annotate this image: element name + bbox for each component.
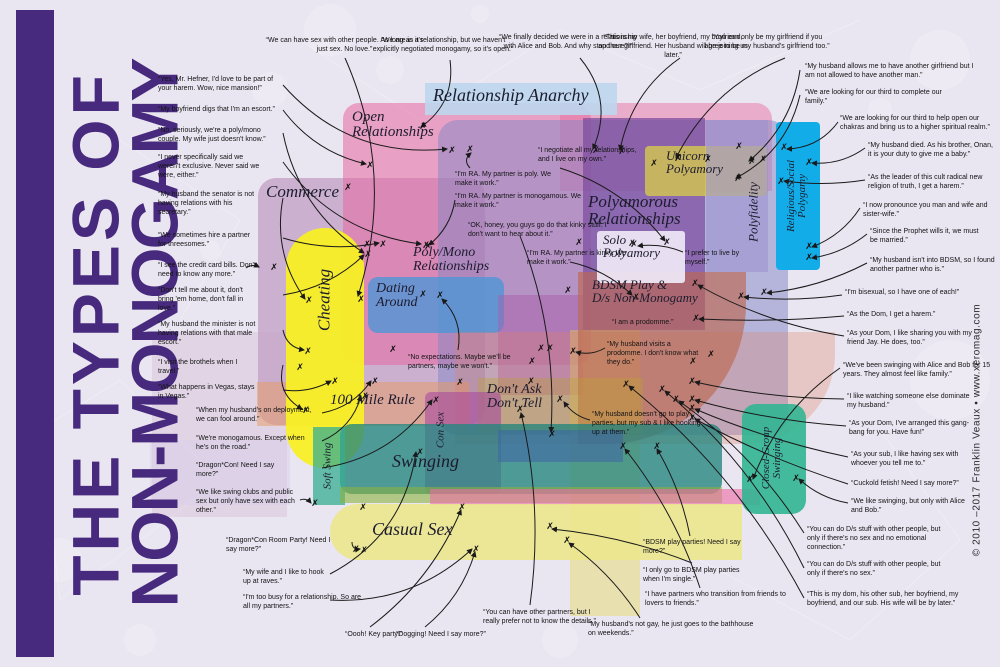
- x-marker: ✗: [456, 378, 464, 388]
- region-label-line: Swinging: [392, 452, 459, 470]
- quote-text: “My husband visits a prodomme. I don't k…: [607, 340, 702, 367]
- quote-text: “We've been swinging with Alice and Bob …: [843, 361, 993, 379]
- quote-arrow: [425, 552, 475, 627]
- x-marker: ✗: [564, 286, 572, 296]
- quote-text: “We like swing clubs and public sex but …: [196, 488, 301, 515]
- x-marker: ✗: [352, 545, 360, 555]
- region-label-line: Polygamy: [797, 160, 808, 232]
- region-label-line: Con Sex: [435, 412, 446, 448]
- x-marker: ✗: [389, 345, 397, 355]
- x-marker: ✗: [805, 242, 813, 252]
- x-marker: ✗: [805, 158, 813, 168]
- quote-text: “I like watching someone else dominate m…: [847, 392, 977, 410]
- region-label-casual-sex: Casual Sex: [372, 520, 453, 538]
- quote-text: “I'm bisexual, so I have one of each!”: [845, 288, 995, 297]
- region-label-line: BDSM Play &: [592, 278, 698, 291]
- x-marker: ✗: [632, 293, 640, 303]
- quote-text: “Don't tell me about it, don't bring 'em…: [158, 286, 253, 313]
- x-marker: ✗: [548, 430, 556, 440]
- quote-text: “This is my dom, his other sub, her boyf…: [807, 590, 982, 608]
- x-marker: ✗: [707, 350, 715, 360]
- x-marker: ✗: [305, 296, 313, 306]
- region-label-line: Relationships: [413, 260, 489, 274]
- region-label-commerce: Commerce: [266, 183, 339, 200]
- region-label-line: D/s Non-Monogamy: [592, 291, 698, 304]
- quote-text: “As the Dom, I get a harem.”: [847, 310, 977, 319]
- x-marker: ✗: [792, 474, 800, 484]
- x-marker: ✗: [419, 122, 427, 132]
- quote-text: “I never specifically said we weren't ex…: [158, 153, 263, 180]
- x-marker: ✗: [304, 347, 312, 357]
- region-label-line: 100 Mile Rule: [330, 393, 415, 408]
- region-label-line: Commerce: [266, 183, 339, 200]
- quote-text: “My husband the minister is not having r…: [158, 320, 258, 347]
- region-label-dont-ask-dont-tell: Don't AskDon't Tell: [487, 383, 542, 412]
- x-marker: ✗: [296, 363, 304, 373]
- x-marker: ✗: [331, 377, 339, 387]
- quote-text: “As your Dom, I've arranged this gang-ba…: [849, 419, 984, 437]
- quote-text: “As your sub, I like having sex with who…: [851, 450, 976, 468]
- quote-text: “We are in a relationship, but we haven'…: [368, 36, 518, 54]
- quote-text: “My husband's not gay, he just goes to t…: [588, 620, 758, 638]
- quote-text: “Dragon*Con Room Party! Need I say more?…: [226, 536, 336, 554]
- x-marker: ✗: [575, 238, 583, 248]
- region-label-line: Swinging: [772, 427, 783, 490]
- region-label-closed-group-swinging: Closed-GroupSwinging: [761, 427, 783, 490]
- x-marker: ✗: [364, 250, 372, 260]
- region-label-line: Relationship Anarchy: [433, 86, 588, 104]
- region-pink-strip: [430, 489, 760, 505]
- region-label-line: Casual Sex: [372, 520, 453, 538]
- x-marker: ✗: [556, 395, 564, 405]
- region-label-religious-social-polygamy: Religious/SocialPolygamy: [786, 160, 808, 232]
- region-label-cheating: Cheating: [315, 269, 332, 331]
- x-marker: ✗: [688, 377, 696, 387]
- x-marker: ✗: [653, 442, 661, 452]
- x-marker: ✗: [432, 396, 440, 406]
- x-marker: ✗: [704, 155, 712, 165]
- quote-text: “Dragon*Con! Need I say more?”: [196, 461, 276, 479]
- x-marker: ✗: [416, 448, 424, 458]
- quote-text: “You can have other partners, but I real…: [483, 608, 603, 626]
- x-marker: ✗: [357, 295, 365, 305]
- region-label-line: Soft Swing: [322, 443, 333, 490]
- quote-text: “OK, honey, you guys go do that kinky st…: [468, 221, 618, 239]
- quote-text: “What happens in Vegas, stays in Vegas.”: [158, 383, 258, 401]
- quote-text: “As the leader of this cult radical new …: [868, 173, 993, 191]
- quote-arrow: [799, 479, 848, 503]
- x-marker: ✗: [735, 142, 743, 152]
- quote-text: “My husband the senator is not having re…: [158, 190, 258, 217]
- x-marker: ✗: [622, 380, 630, 390]
- quote-text: “We're monogamous. Except when he's on t…: [196, 434, 306, 452]
- quote-text: “I negotiate all my relationships, and I…: [538, 146, 643, 164]
- quote-text: “I now pronounce you man and wife and si…: [863, 201, 988, 219]
- x-marker: ✗: [672, 395, 680, 405]
- region-label-soft-swing: Soft Swing: [322, 443, 333, 490]
- x-marker: ✗: [448, 146, 456, 156]
- x-marker: ✗: [360, 546, 368, 556]
- quote-text: “I see the credit card bills. Don't need…: [158, 261, 268, 279]
- x-marker: ✗: [472, 545, 480, 555]
- x-marker: ✗: [663, 238, 671, 248]
- x-marker: ✗: [650, 159, 658, 169]
- x-marker: ✗: [760, 288, 768, 298]
- quote-text: “When my husband's on deployment, we can…: [196, 406, 316, 424]
- region-label-line: Don't Tell: [487, 397, 542, 411]
- x-marker: ✗: [359, 503, 367, 513]
- x-marker: ✗: [759, 155, 767, 165]
- quote-text: “Since the Prophet wills it, we must be …: [870, 227, 985, 245]
- quote-text: “My boyfriend digs that I'm an escort.”: [158, 105, 288, 114]
- region-label-dating-around: DatingAround: [376, 282, 417, 311]
- quote-text: “My husband allows me to have another gi…: [805, 62, 980, 80]
- x-marker: ✗: [371, 377, 379, 387]
- region-label-line: Cheating: [315, 269, 332, 331]
- region-label-line: Polyfidelity: [746, 182, 759, 242]
- quote-text: “My wife and I like to hook up at raves.…: [243, 568, 333, 586]
- x-marker: ✗: [436, 291, 444, 301]
- quote-text: “Yes, Mr. Hefner, I'd love to be part of…: [158, 75, 283, 93]
- quote-text: “My husband doesn't go to play parties, …: [592, 410, 702, 437]
- x-marker: ✗: [674, 154, 682, 164]
- x-marker: ✗: [419, 290, 427, 300]
- quote-text: “I visit the brothels when I travel.”: [158, 358, 248, 376]
- x-marker: ✗: [619, 442, 627, 452]
- x-marker: ✗: [379, 240, 387, 250]
- quote-text: “I'm too busy for a relationship. So are…: [243, 593, 363, 611]
- region-label-bdsm-play: BDSM Play &D/s Non-Monogamy: [592, 278, 698, 305]
- x-marker: ✗: [748, 157, 756, 167]
- region-label-swinging: Swinging: [392, 452, 459, 470]
- x-marker: ✗: [563, 536, 571, 546]
- region-label-line: Polyamory: [666, 162, 723, 175]
- quote-text: “You can do D/s stuff with other people,…: [807, 560, 947, 578]
- x-marker: ✗: [658, 385, 666, 395]
- quote-arrow: [812, 234, 867, 258]
- quote-text: “No, seriously, we're a poly/mono couple…: [158, 126, 283, 144]
- x-marker: ✗: [363, 240, 371, 250]
- x-marker: ✗: [311, 499, 319, 509]
- quote-text: “We are looking for our third to help op…: [840, 114, 995, 132]
- x-marker: ✗: [516, 405, 524, 415]
- x-marker: ✗: [361, 392, 369, 402]
- x-marker: ✗: [777, 177, 785, 187]
- x-marker: ✗: [458, 503, 466, 513]
- x-marker: ✗: [270, 263, 278, 273]
- x-marker: ✗: [466, 145, 474, 155]
- quote-text: “Cuckold fetish! Need I say more?”: [851, 479, 981, 488]
- x-marker: ✗: [805, 253, 813, 263]
- x-marker: ✗: [527, 377, 535, 387]
- quote-text: “I have partners who transition from fri…: [645, 590, 795, 608]
- x-marker: ✗: [691, 279, 699, 289]
- quote-arrow: [300, 499, 311, 503]
- x-marker: ✗: [366, 161, 374, 171]
- quote-text: “I'm RA. My partner is poly. We make it …: [455, 170, 570, 188]
- region-label-hundred-mile-rule: 100 Mile Rule: [330, 393, 415, 408]
- x-marker: ✗: [737, 292, 745, 302]
- region-label-line: Around: [376, 296, 417, 310]
- quote-text: “I only go to BDSM play parties when I'm…: [643, 566, 753, 584]
- quote-text: “Dogging! Need I say more?”: [396, 630, 506, 639]
- quote-text: “My husband died. As his brother, Onan, …: [868, 141, 998, 159]
- region-label-line: Dating: [376, 282, 417, 296]
- quote-text: “My husband isn't into BDSM, so I found …: [870, 256, 995, 274]
- quote-text: “We are looking for our third to complet…: [805, 88, 955, 106]
- quote-text: “BDSM play parties! Need I say more?”: [643, 538, 743, 556]
- quote-text: “We like swinging, but only with Alice a…: [851, 497, 971, 515]
- x-marker: ✗: [344, 183, 352, 193]
- poster: THE TYPES OF NON-MONOGAMY © 2010 –2017 F…: [0, 0, 1000, 667]
- quote-text: “As your Dom, I like sharing you with my…: [847, 329, 982, 347]
- x-marker: ✗: [734, 174, 742, 184]
- region-label-con-sex: Con Sex: [435, 412, 446, 448]
- title-strip: [16, 10, 54, 657]
- x-marker: ✗: [546, 344, 554, 354]
- region-label-relationship-anarchy: Relationship Anarchy: [433, 86, 588, 104]
- quote-text: “You can only be my girlfriend if you ag…: [702, 33, 832, 51]
- x-marker: ✗: [546, 522, 554, 532]
- region-label-line: Polyamorous: [588, 193, 681, 210]
- quote-text: “No expectations. Maybe we'll be partner…: [408, 353, 538, 371]
- quote-text: “I am a prodomme.”: [612, 318, 702, 327]
- x-marker: ✗: [424, 242, 432, 252]
- quote-text: “I'm RA. My partner is kinky. We make it…: [527, 249, 637, 267]
- x-marker: ✗: [746, 475, 754, 485]
- x-marker: ✗: [569, 347, 577, 357]
- quote-text: “We sometimes hire a partner for threeso…: [158, 231, 258, 249]
- quote-text: “I'm RA. My partner is monogamous. We ma…: [455, 192, 590, 210]
- quote-text: “You can do D/s stuff with other people,…: [807, 525, 947, 552]
- region-label-polyfidelity: Polyfidelity: [746, 182, 759, 242]
- x-marker: ✗: [780, 143, 788, 153]
- x-marker: ✗: [537, 344, 545, 354]
- quote-text: “I prefer to live by myself.”: [685, 249, 745, 267]
